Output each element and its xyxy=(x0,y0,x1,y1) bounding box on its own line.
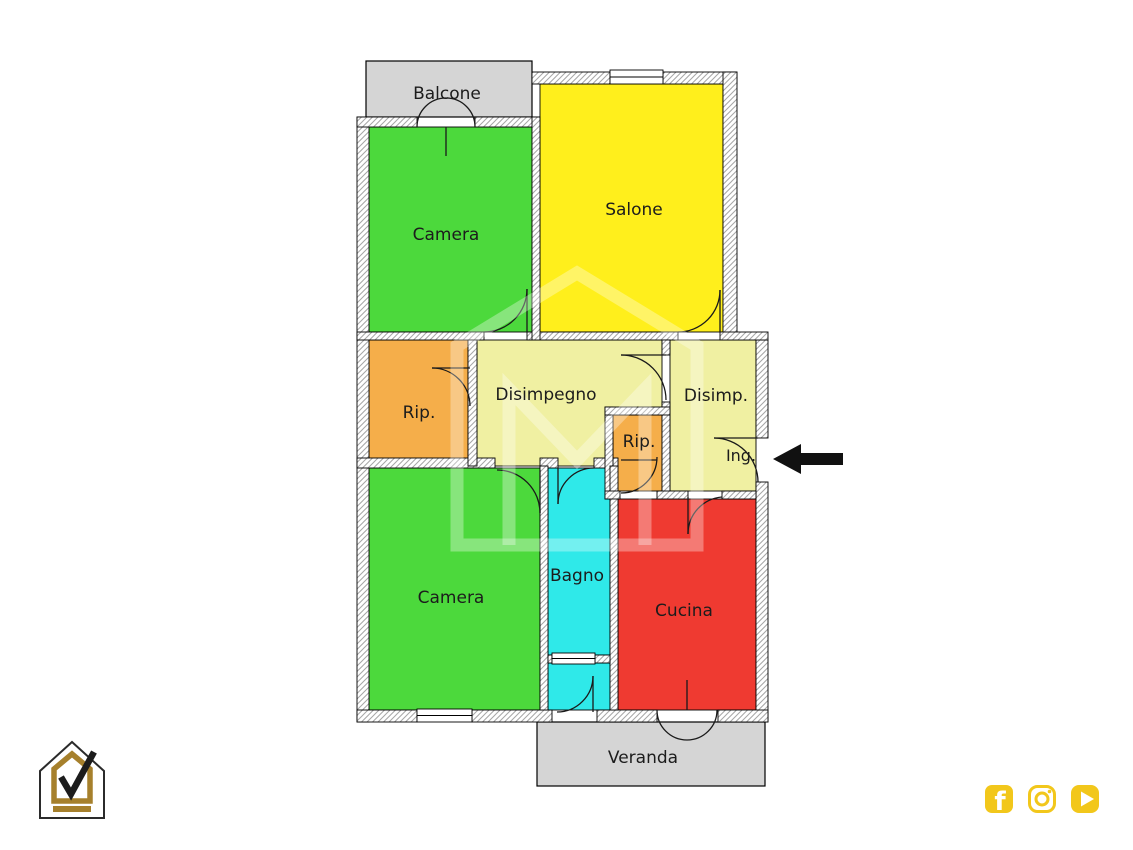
wall-segment xyxy=(595,655,610,663)
room-label-veranda: Veranda xyxy=(608,748,678,768)
wall-segment xyxy=(722,491,756,499)
facebook-icon-glyph: f xyxy=(994,787,1006,817)
wall-segment xyxy=(357,710,417,722)
room-label-camera-bottom: Camera xyxy=(418,588,485,608)
room-label-cucina: Cucina xyxy=(655,601,713,621)
instagram-icon-lens xyxy=(1036,793,1048,805)
wall-segment xyxy=(475,117,540,127)
room-label-salone: Salone xyxy=(605,200,663,220)
instagram-icon xyxy=(1030,787,1055,812)
room-bagno-annex xyxy=(548,663,610,710)
room-label-ing: Ing. xyxy=(726,446,756,465)
wall-segment xyxy=(527,332,678,340)
wall-segment xyxy=(540,466,548,710)
wall-segment xyxy=(357,117,369,722)
floorplan-canvas: Balcone Camera Salone Rip. Disimpegno Di… xyxy=(0,0,1133,850)
instagram-icon-dot xyxy=(1048,790,1052,794)
entrance-arrow xyxy=(773,444,843,474)
wall-segment xyxy=(657,491,688,499)
facebook-icon: f xyxy=(985,785,1013,817)
wall-segment xyxy=(605,491,620,499)
room-label-rip-small: Rip. xyxy=(623,432,656,452)
wall-segment xyxy=(597,710,657,722)
wall-segment xyxy=(357,117,417,127)
wall-segment xyxy=(756,482,768,722)
room-bagno xyxy=(548,468,610,655)
wall-segment xyxy=(610,466,618,710)
wall-segment xyxy=(662,340,670,355)
wall-segment xyxy=(718,710,768,722)
room-rip-small xyxy=(613,415,662,491)
room-label-disimp: Disimp. xyxy=(684,386,748,406)
room-label-balcone: Balcone xyxy=(413,84,481,104)
room-label-camera-top: Camera xyxy=(413,225,480,245)
floorplan-svg: Balcone Camera Salone Rip. Disimpegno Di… xyxy=(0,0,1133,850)
social-icons: f xyxy=(985,785,1099,817)
room-label-rip-left: Rip. xyxy=(403,403,436,423)
wall-segment xyxy=(532,72,610,84)
wall-segment xyxy=(756,340,768,438)
wall-segment xyxy=(472,710,552,722)
wall-segment xyxy=(662,402,670,499)
agency-logo xyxy=(40,742,104,818)
room-label-bagno: Bagno xyxy=(550,566,604,586)
wall-segment xyxy=(723,72,737,340)
wall-segment xyxy=(548,655,552,663)
room-label-disimpegno: Disimpegno xyxy=(495,385,596,405)
logo-gold-bar xyxy=(53,806,91,812)
wall-segment xyxy=(720,332,768,340)
youtube-icon xyxy=(1071,785,1099,813)
room-disimp-ing xyxy=(670,340,756,491)
